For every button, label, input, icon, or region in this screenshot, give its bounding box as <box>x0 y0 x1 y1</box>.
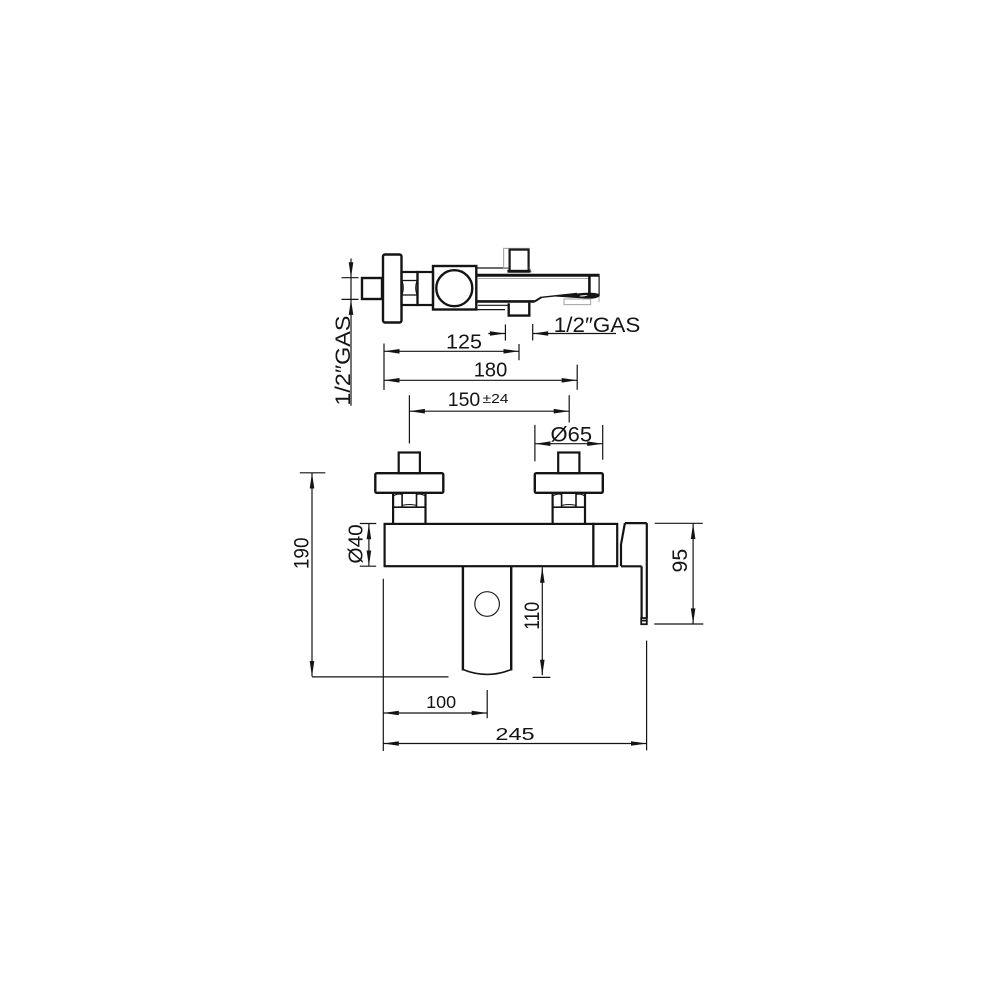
svg-text:150: 150 <box>448 390 481 411</box>
svg-text:190: 190 <box>291 538 314 570</box>
svg-text:110: 110 <box>521 602 544 630</box>
svg-text:245: 245 <box>495 724 534 744</box>
svg-text:95: 95 <box>669 549 692 573</box>
svg-text:Ø65: Ø65 <box>551 422 593 446</box>
svg-text:±24: ±24 <box>483 391 509 406</box>
svg-text:100: 100 <box>426 692 456 712</box>
svg-text:125: 125 <box>446 331 482 353</box>
svg-text:180: 180 <box>474 359 508 382</box>
svg-text:Ø40: Ø40 <box>344 524 367 563</box>
svg-text:1/2″GAS: 1/2″GAS <box>554 313 641 337</box>
svg-text:1/2″GAS: 1/2″GAS <box>331 316 355 406</box>
